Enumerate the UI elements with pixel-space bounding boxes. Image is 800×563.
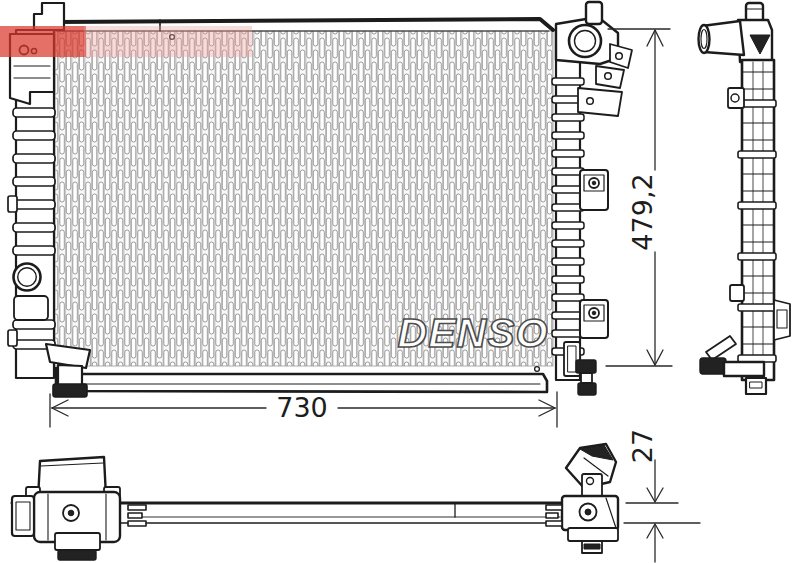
top-mount-tab: [34, 3, 64, 30]
left-foot-pad: [58, 550, 96, 560]
right-bracket-upper: [580, 170, 608, 210]
side-bracket: [774, 300, 790, 340]
height-dimension-label: 479,2: [627, 173, 658, 250]
bottom-view: 27: [12, 429, 700, 562]
front-view: DENSO: [0, 2, 632, 397]
side-foot-pad: [700, 358, 726, 374]
width-dimension-label: 730: [276, 392, 328, 423]
side-view: [699, 3, 791, 394]
dimension-depth: 27: [624, 429, 700, 562]
right-tank: [552, 2, 632, 395]
red-stamp-watermark: [0, 26, 252, 57]
right-bracket-lower: [580, 300, 608, 338]
cap-stub: [586, 2, 602, 24]
technical-drawing-page: DENSO 730 479,2: [0, 0, 800, 563]
bottom-header: [56, 367, 547, 392]
depth-dimension-label: 27: [627, 429, 658, 463]
right-foot-pad: [584, 544, 600, 549]
brand-watermark: DENSO: [398, 310, 549, 356]
inlet-port-circle: [569, 25, 601, 57]
drain-plug: [564, 342, 596, 395]
radiator-drawing-canvas: DENSO 730 479,2: [0, 0, 800, 563]
bottom-right-fitting: [546, 444, 618, 553]
dimension-width: 730: [50, 392, 557, 427]
